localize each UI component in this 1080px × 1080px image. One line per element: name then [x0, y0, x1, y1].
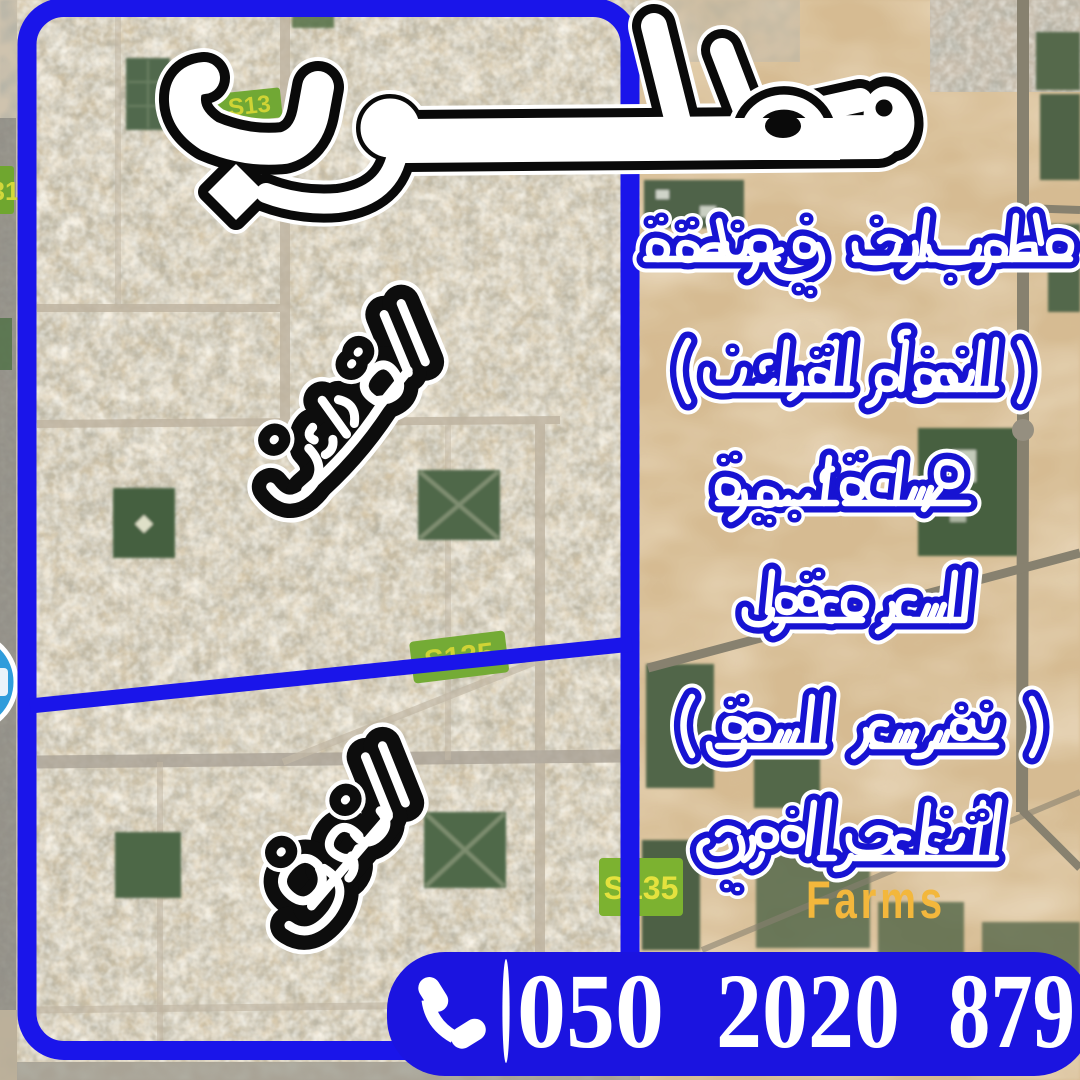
svg-text:879: 879	[948, 953, 1075, 1071]
svg-text:31: 31	[0, 176, 19, 206]
svg-text:2020: 2020	[716, 953, 900, 1071]
svg-text:050: 050	[517, 953, 664, 1071]
svg-text:Farms: Farms	[806, 871, 946, 930]
svg-text:S135: S135	[604, 870, 679, 906]
